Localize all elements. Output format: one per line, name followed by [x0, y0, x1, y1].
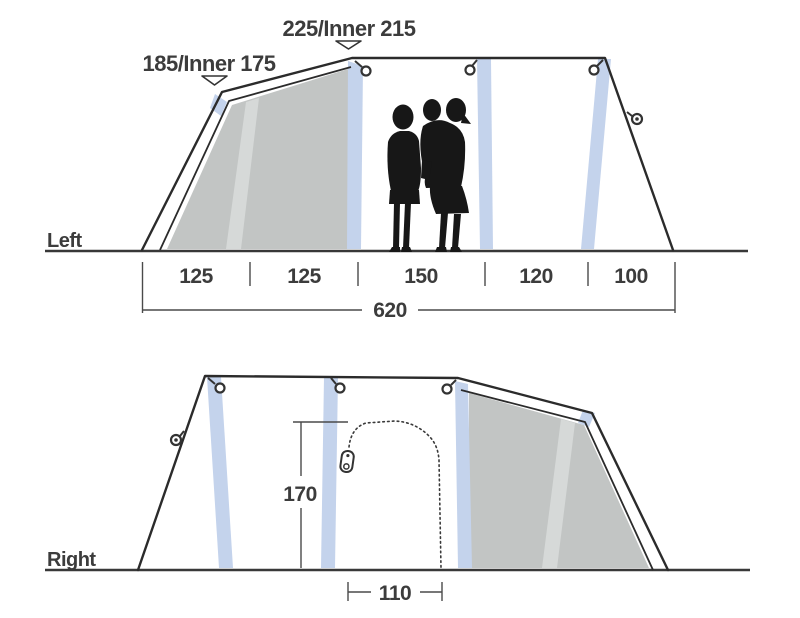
- guy-ring-icon: [590, 66, 599, 75]
- air-pole: [321, 377, 338, 568]
- ridge-height-label: 225/Inner 215: [283, 16, 416, 41]
- family-silhouette: [387, 98, 471, 252]
- air-pole: [347, 61, 363, 249]
- air-pole: [581, 59, 611, 249]
- segment-width-label: 125: [179, 265, 213, 288]
- left-side-view: Left: [45, 16, 748, 322]
- air-pole: [477, 59, 493, 249]
- total-width-label: 620: [373, 299, 407, 322]
- segment-width-label: 125: [287, 265, 321, 288]
- door-zipper-line: [349, 421, 441, 568]
- guy-ring-icon: [336, 384, 345, 393]
- segment-dimensions: 125 125 150 120 100 620: [143, 262, 676, 322]
- down-arrow-icon: [336, 41, 361, 49]
- segment-width-label: 150: [404, 265, 438, 288]
- air-pole: [207, 377, 233, 568]
- right-view-label: Right: [47, 549, 96, 571]
- door-width-dimension: 110: [348, 582, 442, 605]
- door-width-label: 110: [379, 582, 411, 605]
- guy-ring-icon: [216, 384, 225, 393]
- door-height-label: 170: [283, 483, 317, 506]
- down-arrow-icon: [202, 76, 227, 85]
- guy-ring-icon: [362, 67, 371, 76]
- segment-width-label: 120: [519, 265, 553, 288]
- zipper-pull-icon: [340, 450, 355, 472]
- segment-width-label: 100: [614, 265, 648, 288]
- door-height-dimension: 170: [283, 422, 348, 568]
- guy-ring-icon: [466, 66, 475, 75]
- guy-ring-icon: [443, 385, 452, 394]
- grommet-dot: [635, 117, 639, 121]
- grommet-dot: [174, 438, 178, 442]
- left-view-label: Left: [47, 230, 83, 252]
- peak-height-label: 185/Inner 175: [143, 51, 276, 76]
- right-side-view: Right: [45, 376, 750, 605]
- window-panel: [167, 69, 348, 249]
- tent-dimension-diagram: Left: [0, 0, 800, 618]
